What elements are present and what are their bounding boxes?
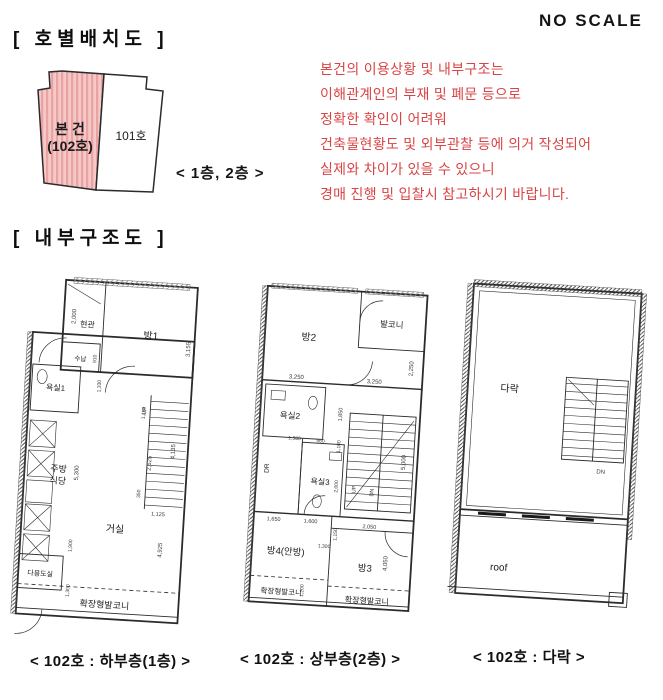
dim-label: 1,600 xyxy=(303,519,317,526)
caption-plan-attic: < 102호 : 다락 > xyxy=(473,646,585,667)
dim-label: 1,380 xyxy=(288,435,301,442)
entry-divider-wall xyxy=(101,282,106,372)
notice-text: 본건의 이용상황 및 내부구조는 이해관계인의 부재 및 폐문 등으로 정확한 … xyxy=(320,57,591,207)
room-label-bath1: 욕실1 xyxy=(46,382,66,393)
exterior-wall-hatch xyxy=(244,286,268,602)
sink-icon xyxy=(271,390,286,400)
room-label-balcony: 확장형발코니 xyxy=(79,597,129,611)
dim-label: 1,330 xyxy=(96,379,103,392)
balcony-dashed-line xyxy=(18,583,180,593)
room-label-balcony-top: 발코니 xyxy=(380,319,404,330)
dim-label: 2,000 xyxy=(71,308,78,324)
dim-label: 4,135 xyxy=(170,443,177,459)
dim-label: 2,050 xyxy=(362,524,376,531)
room-label-kitchen-2: 식당 xyxy=(49,475,66,486)
door-arc xyxy=(14,607,42,635)
room-label-bath2: 욕실2 xyxy=(280,410,301,421)
neighbor-unit-label: 101호 xyxy=(115,129,146,143)
toilet-icon xyxy=(312,495,322,509)
room-label-storage: 수납 xyxy=(74,354,87,364)
window-segment xyxy=(478,513,506,515)
appraisal-floorplan-page: [ 호별배치도 ] NO SCALE [ 내부구조도 ] 본 건 (102호) … xyxy=(0,0,663,700)
room-label-dress: DR xyxy=(263,463,271,473)
floor-plan-lower: 현관 방1 수납 욕실1 주방 식당 거실 다용도실 확장형발코니 UP 2,0… xyxy=(8,272,240,648)
title-internal-structure: [ 내부구조도 ] xyxy=(13,223,169,250)
inner-wall-line xyxy=(466,291,635,515)
dim-label: 1,300 xyxy=(65,584,72,597)
room-label-balcony-right: 확장형발코니 xyxy=(345,594,390,607)
dim-label: 1,150 xyxy=(141,406,148,419)
room2-bottom-wall xyxy=(262,380,422,390)
dim-label: 1,850 xyxy=(338,408,345,422)
dim-label: 2,250 xyxy=(409,360,416,376)
notice-line-5: 실제와 차이가 있을 수 있으니 xyxy=(320,157,591,182)
dim-label: 1,100 xyxy=(336,440,343,453)
door-arc xyxy=(105,365,135,395)
room-label-living: 거실 xyxy=(105,523,124,536)
dim-label: 5,300 xyxy=(74,465,81,481)
stairs-label-dn: DN xyxy=(596,469,605,476)
outer-wall xyxy=(455,284,642,604)
dim-label: 1,125 xyxy=(151,512,165,519)
window-band xyxy=(74,277,190,290)
no-scale-label: NO SCALE xyxy=(539,11,643,31)
subject-unit-label: 본 건 xyxy=(55,121,85,137)
window-band xyxy=(272,283,358,293)
room-label-room2: 방2 xyxy=(301,331,317,344)
sink-icon xyxy=(34,487,44,497)
room-label-bath3: 욕실3 xyxy=(310,476,330,487)
window-segment xyxy=(566,519,594,521)
dim-label: 1,900 xyxy=(68,539,75,552)
notice-line-1: 본건의 이용상황 및 내부구조는 xyxy=(320,57,591,82)
stair-flight-line xyxy=(567,379,595,405)
room-label-utility: 다용도실 xyxy=(27,568,53,579)
room-label-roof: roof xyxy=(490,562,508,574)
stairs-label-up: UP xyxy=(351,485,357,493)
dim-label: 350 xyxy=(136,489,143,498)
dim-label: 2,625 xyxy=(147,455,154,471)
toilet-icon xyxy=(37,369,48,384)
balcony-dashed-line xyxy=(328,586,410,591)
stair-treads xyxy=(145,401,189,507)
dim-label: 1,300 xyxy=(318,543,331,550)
corner-pillar xyxy=(609,592,628,607)
dim-label: 4,050 xyxy=(383,555,390,571)
room-label-attic: 다락 xyxy=(500,382,519,395)
dim-label: 1,150 xyxy=(332,528,339,541)
dim-label: 1,650 xyxy=(267,516,281,523)
floors-note: < 1층, 2층 > xyxy=(176,162,264,183)
dim-label: 560 xyxy=(316,438,325,445)
kitchen-cabinets xyxy=(22,420,56,561)
window-segment xyxy=(522,516,550,518)
balcony-bottom-wall xyxy=(358,348,424,352)
notice-line-4: 건축물현황도 및 외부관찰 등에 의거 작성되어 xyxy=(320,132,591,157)
dim-label: 3,250 xyxy=(367,379,383,386)
dim-label: 910 xyxy=(92,354,99,363)
room-label-room4: 방4(안방) xyxy=(266,545,304,558)
dim-label: 3,155 xyxy=(186,341,193,357)
caption-plan-upper: < 102호 : 상부층(2층) > xyxy=(240,648,401,669)
caption-plan-lower: < 102호 : 하부층(1층) > xyxy=(30,650,191,671)
balcony-dashed-line xyxy=(250,575,328,580)
notice-line-6: 경매 진행 및 입찰시 참고하시기 바랍니다. xyxy=(320,182,591,207)
door-arc xyxy=(304,495,325,516)
notice-line-2: 이해관계인의 부재 및 폐문 등으로 xyxy=(320,82,591,107)
dim-label: 1,200 xyxy=(299,584,306,597)
room-label-kitchen-1: 주방 xyxy=(50,463,67,474)
room-label-room3: 방3 xyxy=(357,563,372,575)
room-label-balcony-left: 확장형발코니 xyxy=(260,585,302,598)
window-band xyxy=(366,289,424,298)
floor-plan-attic: 다락 roof DN xyxy=(452,272,660,644)
roof-bottom-wall xyxy=(447,586,623,597)
notice-line-3: 정확한 확인이 어려워 xyxy=(320,107,591,132)
exterior-wall-hatch xyxy=(627,294,647,540)
stairs-label-dn: DN xyxy=(369,488,375,496)
dim-label: 5,000 xyxy=(401,454,408,470)
entry-closet-diagonal xyxy=(67,284,102,304)
room-label-entry: 현관 xyxy=(80,319,96,330)
dim-label: 3,250 xyxy=(289,374,305,381)
room-divider-wall xyxy=(326,516,331,606)
floor-plan-upper: 방2 발코니 욕실2 DR 욕실3 방4(안방) 방3 확장형발코니 확장형발코… xyxy=(240,272,455,648)
exterior-wall-hatch xyxy=(474,280,642,297)
subject-unit-number: (102호) xyxy=(47,138,93,154)
dim-label: 2,000 xyxy=(333,480,340,493)
door-arc xyxy=(384,531,409,556)
room-label-room1: 방1 xyxy=(143,330,159,343)
toilet-icon xyxy=(308,396,318,410)
dim-label: 4,925 xyxy=(157,542,164,558)
